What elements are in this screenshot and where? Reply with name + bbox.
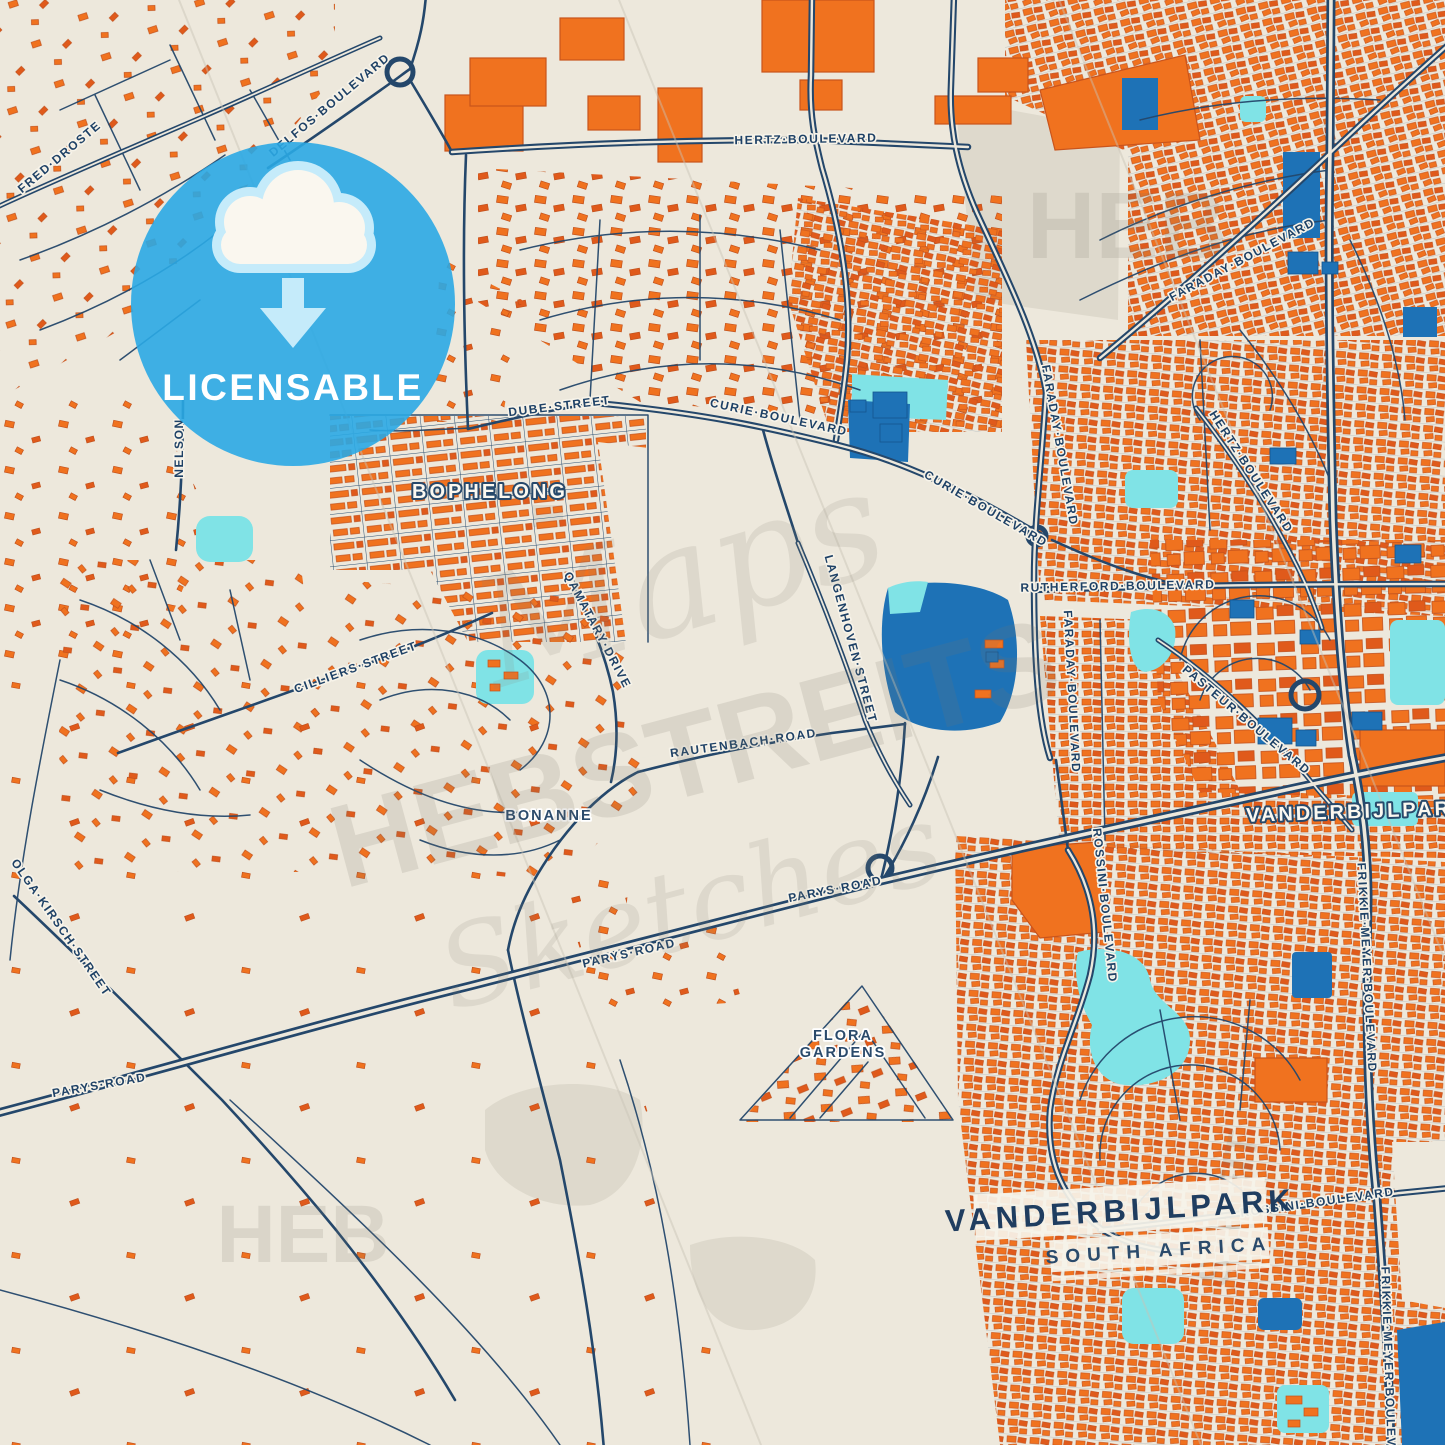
area-label: FLORA (813, 1028, 873, 1044)
watermark-text: HEB (216, 1189, 389, 1280)
area-label: BOPHELONG (412, 481, 568, 503)
area-label: GARDENS (800, 1045, 887, 1061)
map-poster: DELFOS·BOULEVARDFRED·DROSTENELSONHERTZ·B… (0, 0, 1445, 1445)
map-canvas: DELFOS·BOULEVARDFRED·DROSTENELSONHERTZ·B… (0, 0, 1445, 1445)
street-label: HERTZ·BOULEVARD (734, 131, 877, 147)
badge-label: LICENSABLE (162, 367, 423, 408)
watermark-text: HEB (1027, 173, 1228, 279)
licensable-badge[interactable]: LICENSABLE (131, 142, 455, 466)
street-label: NELSON (172, 418, 186, 478)
